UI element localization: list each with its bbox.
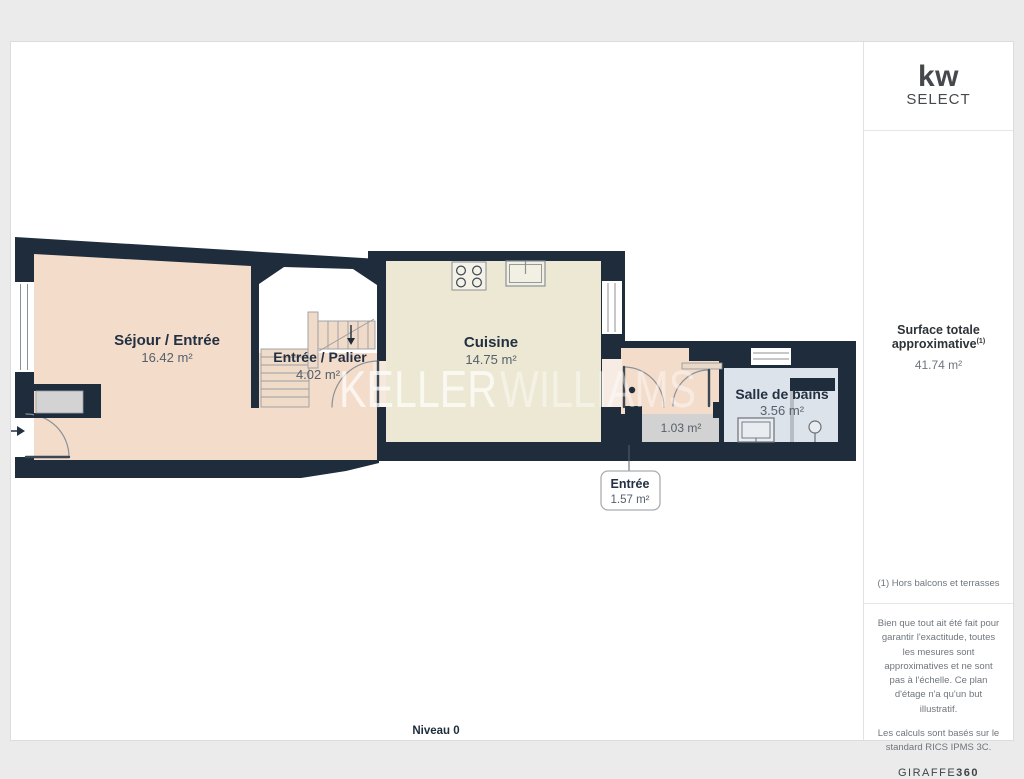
disclaimer-block: Bien que tout ait été fait pour garantir… bbox=[864, 604, 1013, 740]
label-sejour-name: Séjour / Entrée bbox=[114, 332, 220, 349]
label-bains-area: 3.56 m² bbox=[760, 403, 805, 418]
kw-logo: kw bbox=[918, 64, 959, 90]
wall-vestibule-bath bbox=[719, 361, 724, 442]
kw-logo-select: SELECT bbox=[906, 91, 970, 108]
label-entree-name: Entrée bbox=[611, 477, 650, 491]
surface-value: 41.74 m² bbox=[915, 358, 962, 372]
floor-plan-svg: KELLER WILLIAMS Séjour / Entrée 16.42 m²… bbox=[11, 42, 863, 740]
closet-alcove bbox=[34, 384, 101, 418]
disclaimer-paragraph-1: Bien que tout ait été fait pour garantir… bbox=[876, 617, 1001, 717]
disclaimer-paragraph-2: Les calculs sont basés sur le standard R… bbox=[876, 727, 1001, 756]
bath-sink-icon bbox=[738, 418, 774, 442]
surface-title: Surface totale approximative(1) bbox=[872, 323, 1005, 351]
content-card: KELLER WILLIAMS Séjour / Entrée 16.42 m²… bbox=[10, 41, 1014, 741]
label-palier-name: Entrée / Palier bbox=[273, 349, 367, 365]
giraffe360-brand: GIRAFFE360 bbox=[876, 767, 1001, 779]
watermark: KELLER WILLIAMS bbox=[339, 361, 696, 419]
footnote-block: (1) Hors balcons et terrasses bbox=[864, 563, 1013, 604]
kitchen-sink-icon bbox=[506, 261, 545, 286]
stove-icon bbox=[452, 262, 486, 290]
info-sidebar: kw SELECT Surface totale approximative(1… bbox=[863, 42, 1013, 740]
surface-title-text: Surface totale approximative bbox=[892, 323, 980, 351]
surface-block: Surface totale approximative(1) 41.74 m² bbox=[864, 131, 1013, 563]
label-cuisine-area: 14.75 m² bbox=[465, 352, 517, 367]
label-wc-area: 1.03 m² bbox=[661, 421, 702, 435]
label-entree-area: 1.57 m² bbox=[611, 494, 650, 506]
level-label: Niveau 0 bbox=[412, 725, 459, 737]
logo-block: kw SELECT bbox=[864, 42, 1013, 131]
floor-plan-area: KELLER WILLIAMS Séjour / Entrée 16.42 m²… bbox=[11, 42, 863, 740]
watermark-part2: WILLIAMS bbox=[500, 361, 696, 419]
window-sejour-left bbox=[14, 282, 34, 372]
label-bains-name: Salle de bains bbox=[735, 386, 829, 402]
window-kitchen-right bbox=[602, 281, 622, 334]
brand-bold: 360 bbox=[956, 767, 979, 779]
label-palier-area: 4.02 m² bbox=[296, 367, 341, 382]
brand-regular: GIRAFFE bbox=[898, 767, 956, 779]
label-cuisine-name: Cuisine bbox=[464, 334, 518, 351]
watermark-part1: KELLER bbox=[339, 361, 497, 419]
surface-title-superscript: (1) bbox=[977, 337, 986, 344]
footnote-text: (1) Hors balcons et terrasses bbox=[878, 578, 1000, 589]
label-sejour-area: 16.42 m² bbox=[141, 350, 193, 365]
window-bathroom-top bbox=[751, 348, 791, 365]
doorway-entrance-gap bbox=[14, 418, 34, 457]
